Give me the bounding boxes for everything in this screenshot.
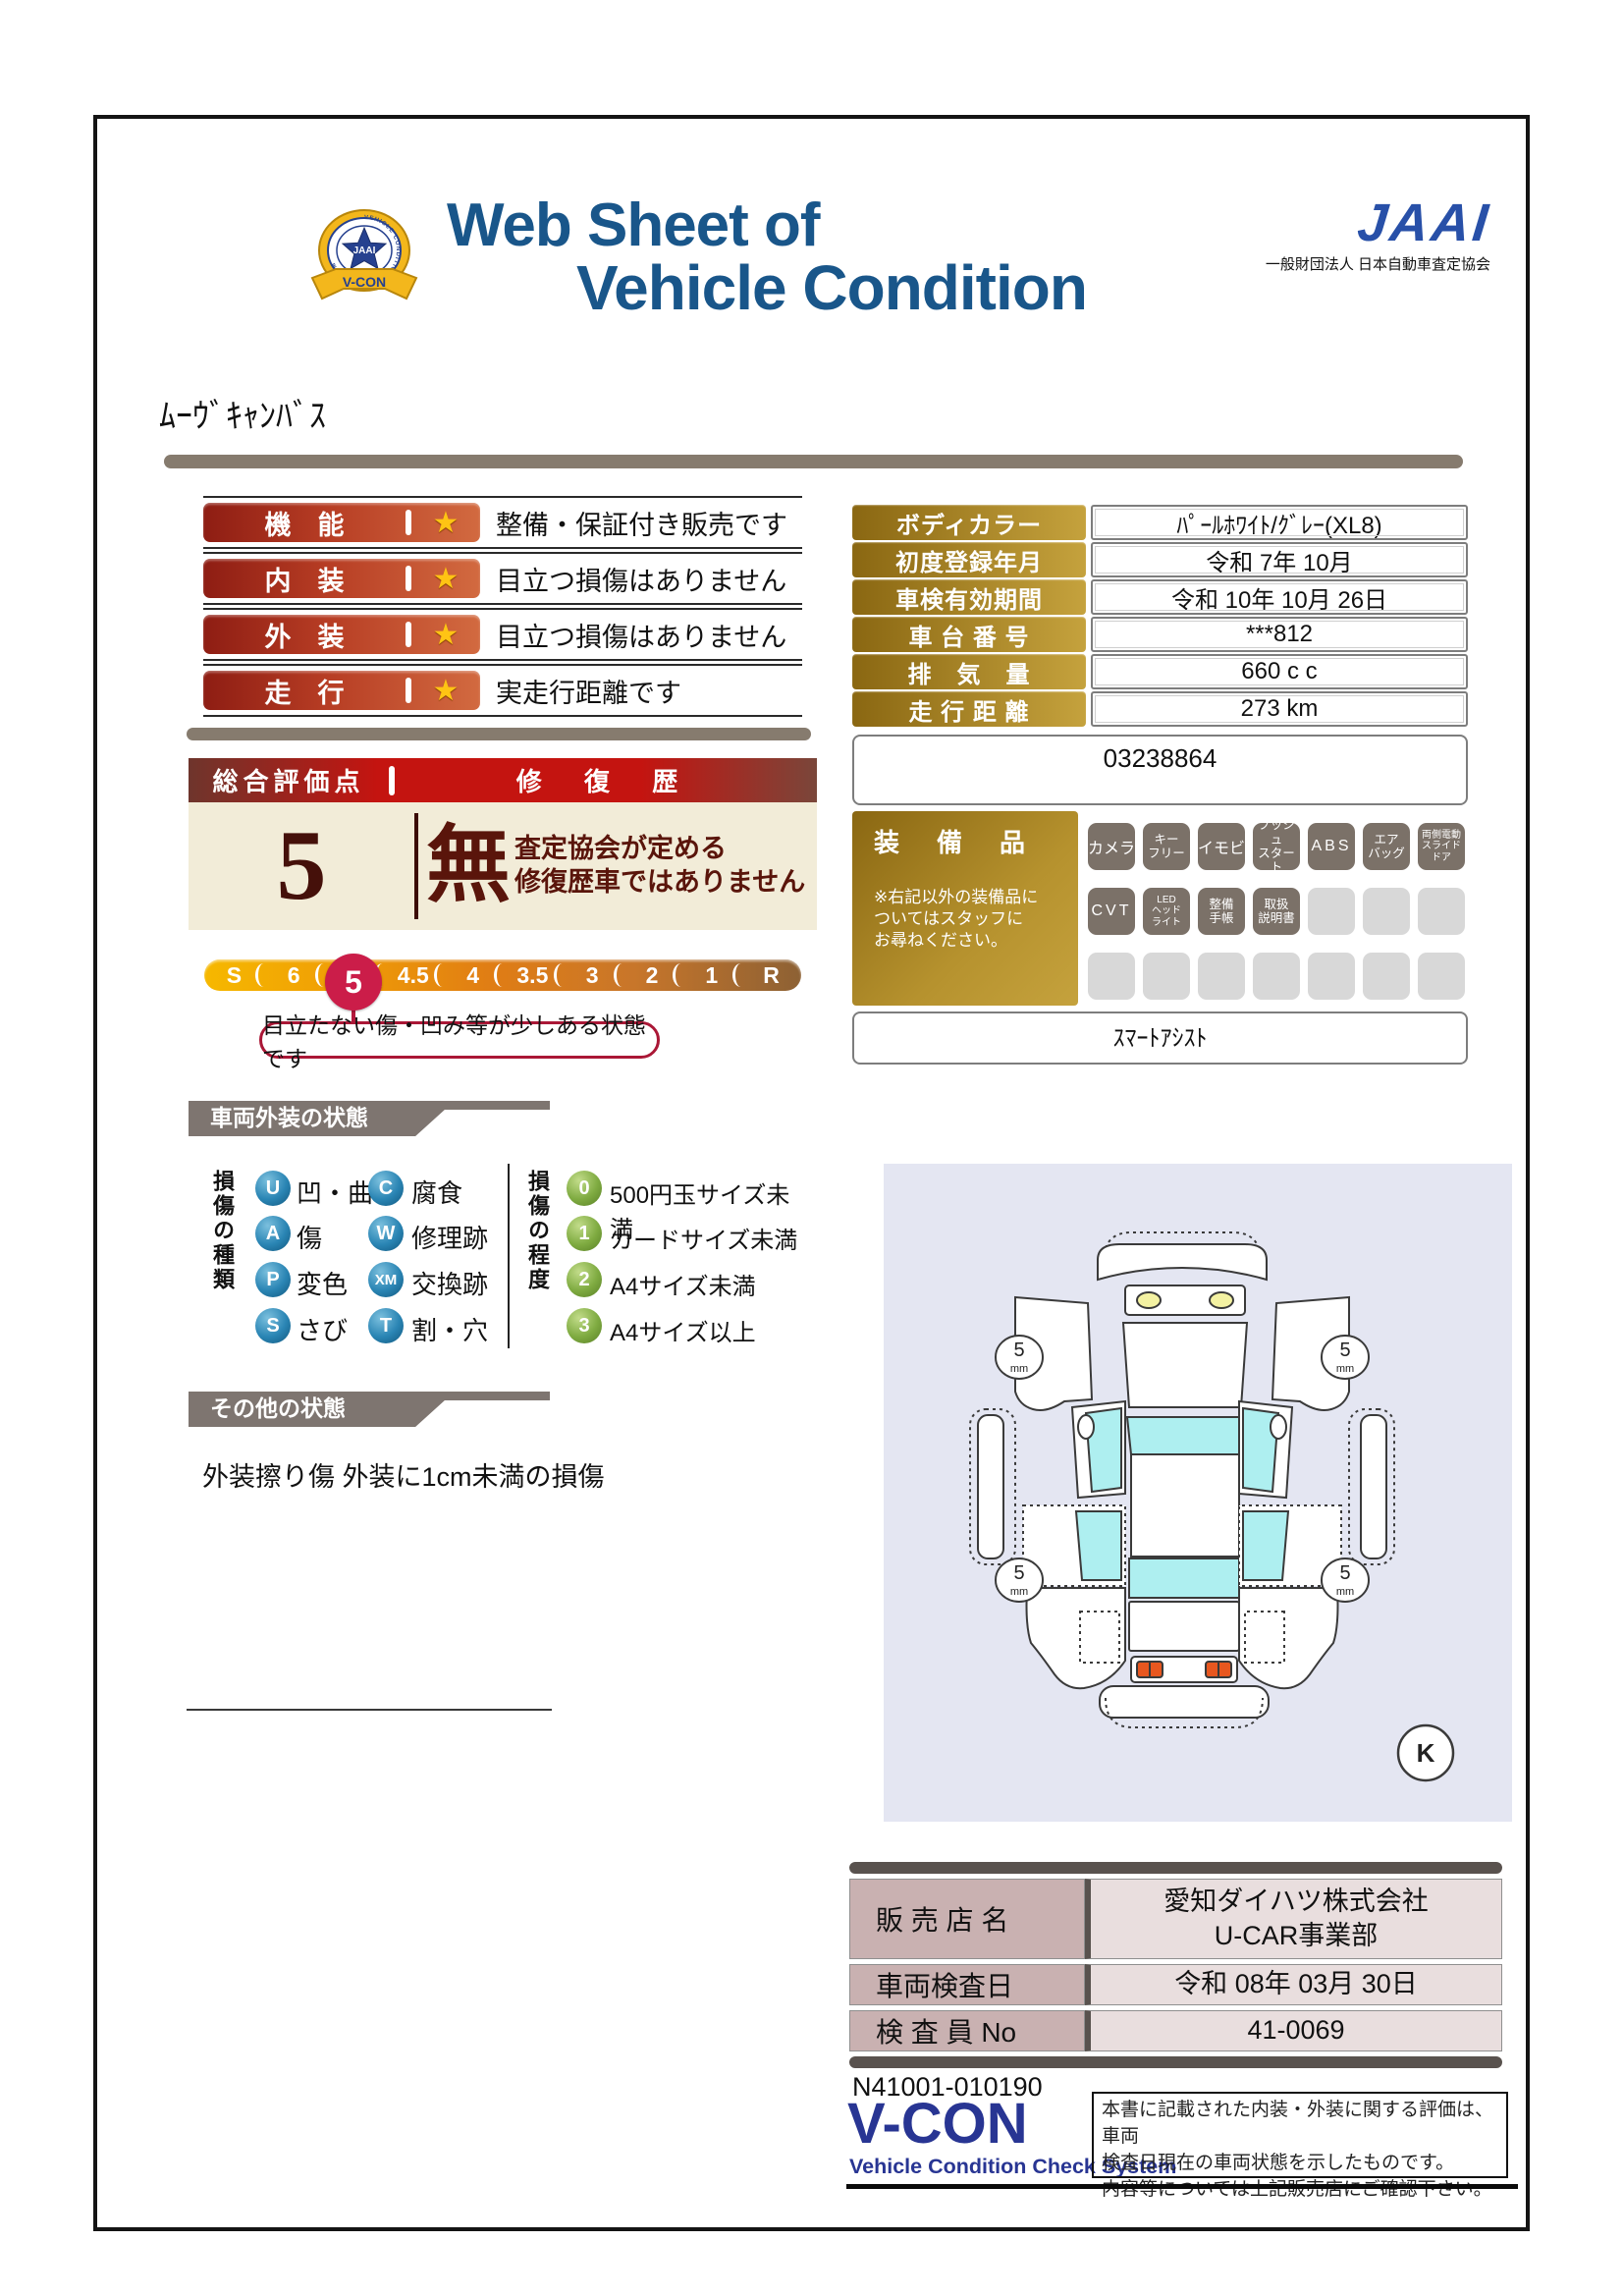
degree-0-icon: 0 <box>567 1171 602 1206</box>
rating-comment: 目立つ損傷はありません <box>496 560 786 598</box>
star-icon: ★ <box>411 618 480 652</box>
overall-body: 5 無 査定協会が定める 修復歴車ではありません <box>189 802 817 930</box>
equipment-badge-empty <box>1308 953 1355 1000</box>
equipment-badge-empty <box>1418 888 1465 935</box>
tire-depth-value: 5 <box>1013 1562 1024 1584</box>
damage-code-a-icon: A <box>255 1216 291 1251</box>
damage-code-t-icon: T <box>368 1308 404 1343</box>
overall-score-box: 総合評価点 修 復 歴 5 無 査定協会が定める 修復歴車ではありません <box>189 758 817 930</box>
info-label: ボディカラー <box>852 505 1086 540</box>
tire-badge-front-left: 5 mm <box>996 1336 1043 1379</box>
overall-body-separator <box>414 813 418 919</box>
rating-row-interior: 内 装 ★ 目立つ損傷はありません <box>203 552 802 605</box>
crest-vcon-text: V-CON <box>343 274 386 290</box>
reference-number-box: 03238864 <box>852 735 1468 805</box>
equipment-badge-empty <box>1363 953 1410 1000</box>
damage-code-p-icon: P <box>255 1262 291 1297</box>
dealer-row-inspection-date: 車両検査日 令和 08年 03月 30日 <box>849 1964 1502 2005</box>
crest-jaai-text: JAAI <box>353 246 376 256</box>
section-title: 車両外装の状態 <box>210 1105 368 1130</box>
sheet-title: Web Sheet of Vehicle Condition <box>447 194 1087 321</box>
vehicle-name: ﾑｰｳﾞｷｬﾝﾊﾞｽ <box>159 389 326 437</box>
damage-type-label: さび <box>297 1311 348 1347</box>
jaai-org-name: 一般財団法人 日本自動車査定協会 <box>1227 253 1490 274</box>
door-mirror <box>1078 1415 1094 1439</box>
equipment-badge-service-record: 整備 手帳 <box>1198 888 1245 935</box>
degree-label: A4サイズ以上 <box>610 1313 756 1347</box>
overall-score-value: 5 <box>189 816 414 916</box>
title-line2: Vehicle Condition <box>576 256 1087 320</box>
info-label: 排 気 量 <box>852 654 1086 689</box>
overall-header: 総合評価点 修 復 歴 <box>189 758 817 802</box>
jaai-logo: JAAI <box>1224 196 1493 249</box>
equipment-badge-immobilizer: イモビ <box>1198 823 1245 870</box>
equipment-badge-empty <box>1253 953 1300 1000</box>
damage-type-label: 凹・曲 <box>297 1174 373 1210</box>
rating-label: 内 装 <box>203 560 406 598</box>
damage-type-label: 割・穴 <box>411 1311 488 1347</box>
rating-comment: 目立つ損傷はありません <box>496 616 786 654</box>
section-title: その他の状態 <box>210 1395 346 1421</box>
smart-assist-box: ｽﾏｰﾄｱｼｽﾄ <box>852 1011 1468 1065</box>
sliding-door-window <box>1076 1511 1121 1580</box>
damage-type-label: 変色 <box>297 1265 348 1301</box>
repair-history: 無 査定協会が定める 修復歴車ではありません <box>426 826 805 906</box>
degree-2-icon: 2 <box>567 1262 602 1297</box>
dealer-value: 令和 08年 03月 30日 <box>1085 1964 1502 2005</box>
rating-comment: 実走行距離です <box>496 672 681 710</box>
rating-label: 外 装 <box>203 616 406 654</box>
tire-badge-front-right: 5 mm <box>1322 1336 1369 1379</box>
degree-3-icon: 3 <box>567 1308 602 1343</box>
tire-badge-rear-left: 5 mm <box>996 1558 1043 1602</box>
info-row-body-color: ボディカラー ﾊﾟｰﾙﾎﾜｲﾄ/ｸﾞﾚｰ(XL8) <box>852 505 1468 540</box>
rating-label: 走 行 <box>203 672 406 710</box>
headlight-right <box>1210 1292 1233 1308</box>
equipment-badge-abs: ABS <box>1308 823 1355 870</box>
windshield <box>1127 1417 1243 1454</box>
damage-type-title: 損傷の種類 <box>206 1170 238 1292</box>
damage-code-s-icon: S <box>255 1308 291 1343</box>
info-row-inspection-valid: 車検有効期間 令和 10年 10月 26日 <box>852 579 1468 615</box>
disclaimer-box: 本書に記載された内装・外装に関する評価は、車両 検査日現在の車両状態を示したもの… <box>1092 2092 1508 2178</box>
dealer-value: 41-0069 <box>1085 2010 1502 2051</box>
damage-type-label: 修理跡 <box>411 1219 488 1255</box>
grade-scale: S 6 5 4.5 4 3.5 3 2 1 R <box>204 959 801 991</box>
info-row-chassis-number: 車 台 番 号 ***812 <box>852 617 1468 652</box>
degree-label: A4サイズ未満 <box>610 1267 756 1301</box>
car-diagram-panel: 5 mm 5 mm 5 mm 5 mm <box>884 1164 1512 1822</box>
jaai-org: JAAI 一般財団法人 日本自動車査定協会 <box>1227 196 1490 274</box>
front-bumper <box>1098 1244 1267 1280</box>
left-side-panels <box>970 1297 1125 1688</box>
info-value: 273 km <box>1091 691 1468 727</box>
equipment-badge-led-headlight: LED ヘッド ライト <box>1143 888 1190 935</box>
degree-label: カードサイズ未満 <box>610 1221 797 1255</box>
damage-code-w-icon: W <box>368 1216 404 1251</box>
side-strip <box>978 1415 1003 1558</box>
equipment-badge-cvt: CVT <box>1088 888 1135 935</box>
dealer-row-inspector: 検 査 員 No 41-0069 <box>849 2010 1502 2051</box>
equipment-badge-empty <box>1088 953 1135 1000</box>
grade-seg-r: R <box>741 962 801 989</box>
dealer-label: 検 査 員 No <box>849 2010 1085 2051</box>
equipment-badge-empty <box>1363 888 1410 935</box>
tire-depth-value: 5 <box>1339 1562 1350 1584</box>
tire-badge-rear-right: 5 mm <box>1322 1558 1369 1602</box>
grade-callout: 目立たない傷・凹み等が少しある状態です <box>259 1021 660 1059</box>
car-diagram: 5 mm 5 mm 5 mm 5 mm <box>884 1164 1512 1822</box>
damage-degree-title: 損傷の程度 <box>521 1170 553 1292</box>
equipment-title: 装 備 品 <box>874 823 1078 859</box>
info-label: 走 行 距 離 <box>852 691 1086 727</box>
dealer-row-shop: 販 売 店 名 愛知ダイハツ株式会社 U-CAR事業部 <box>849 1879 1502 1959</box>
equipment-badge-owners-manual: 取扱 説明書 <box>1253 888 1300 935</box>
info-value: ﾊﾟｰﾙﾎﾜｲﾄ/ｸﾞﾚｰ(XL8) <box>1091 505 1468 540</box>
dealer-label: 車両検査日 <box>849 1964 1085 2005</box>
rating-row-exterior: 外 装 ★ 目立つ損傷はありません <box>203 608 802 661</box>
tire-depth-unit: mm <box>1336 1363 1354 1375</box>
info-value: ***812 <box>1091 617 1468 652</box>
damage-type-label: 腐食 <box>411 1174 462 1210</box>
equipment-badge-push-start: プッシュ スタート <box>1253 823 1300 870</box>
star-icon: ★ <box>411 674 480 708</box>
info-value: 令和 10年 10月 26日 <box>1091 579 1468 615</box>
other-condition-note: 外装擦り傷 外装に1cm未満の損傷 <box>202 1455 605 1494</box>
tire-depth-unit: mm <box>1010 1363 1028 1375</box>
equipment-badge-camera: カメラ <box>1088 823 1135 870</box>
selected-grade-badge: 5 <box>325 954 382 1011</box>
footer-line <box>846 2184 1518 2189</box>
damage-type-label: 傷 <box>297 1219 322 1255</box>
rear-quarter <box>1027 1588 1126 1688</box>
rating-bar: 走 行 ★ <box>203 671 480 710</box>
rating-comment: 整備・保証付き販売です <box>496 504 787 542</box>
vcon-crest-icon: VEHICLE CONDITION CHECK SYSTEM JAAI V-CO… <box>306 209 422 311</box>
equipment-grid: カメラ キー フリー イモビ プッシュ スタート ABS エア バッグ 両側電動… <box>1088 823 1465 1000</box>
dealer-table-top-bar <box>849 1862 1502 1874</box>
equipment-note: ※右記以外の装備品に ついてはスタッフに お尋ねください。 <box>874 887 1078 952</box>
repair-history-title: 修 復 歴 <box>395 762 817 798</box>
rating-bar: 機 能 ★ <box>203 503 480 542</box>
star-icon: ★ <box>411 562 480 596</box>
k-mark: K <box>1417 1738 1435 1768</box>
equipment-badge-empty <box>1308 888 1355 935</box>
tailgate <box>1129 1602 1239 1651</box>
roof <box>1131 1454 1239 1557</box>
tire-depth-unit: mm <box>1010 1586 1028 1598</box>
info-value: 令和 7年 10月 <box>1091 542 1468 577</box>
rating-row-mileage: 走 行 ★ 実走行距離です <box>203 664 802 717</box>
info-row-first-registration: 初度登録年月 令和 7年 10月 <box>852 542 1468 577</box>
info-row-displacement: 排 気 量 660 c c <box>852 654 1468 689</box>
damage-code-u-icon: U <box>255 1171 291 1206</box>
info-row-mileage: 走 行 距 離 273 km <box>852 691 1468 727</box>
star-icon: ★ <box>411 506 480 540</box>
equipment-badge-power-slide-doors: 両側電動 スライド ドア <box>1418 823 1465 870</box>
equipment-box: 装 備 品 ※右記以外の装備品に ついてはスタッフに お尋ねください。 <box>852 811 1078 1006</box>
dealer-table: 販 売 店 名 愛知ダイハツ株式会社 U-CAR事業部 車両検査日 令和 08年… <box>849 1862 1502 2068</box>
info-label: 初度登録年月 <box>852 542 1086 577</box>
divider-bar-top <box>164 455 1463 468</box>
divider-bar-mid <box>187 728 811 740</box>
equipment-badge-empty <box>1198 953 1245 1000</box>
headlight-left <box>1137 1292 1161 1308</box>
dealer-table-bottom-bar <box>849 2056 1502 2068</box>
damage-type-label: 交換跡 <box>411 1265 488 1301</box>
equipment-badge-airbag: エア バッグ <box>1363 823 1410 870</box>
info-label: 車検有効期間 <box>852 579 1086 615</box>
dealer-label: 販 売 店 名 <box>849 1879 1085 1959</box>
repair-history-note: 査定協会が定める 修復歴車ではありません <box>514 833 805 900</box>
info-label: 車 台 番 号 <box>852 617 1086 652</box>
equipment-badge-empty <box>1143 953 1190 1000</box>
rating-row-function: 機 能 ★ 整備・保証付き販売です <box>203 496 802 549</box>
degree-1-icon: 1 <box>567 1216 602 1251</box>
title-line1: Web Sheet of <box>447 194 1087 256</box>
dealer-value: 愛知ダイハツ株式会社 U-CAR事業部 <box>1085 1879 1502 1959</box>
equipment-badge-empty <box>1418 953 1465 1000</box>
hood <box>1123 1323 1247 1407</box>
rating-bar: 外 装 ★ <box>203 615 480 654</box>
damage-code-c-icon: C <box>368 1171 404 1206</box>
damage-legend: 損傷の種類 U 凹・曲 C 腐食 A 傷 W 修理跡 P 変色 XM 交換跡 S… <box>201 1164 810 1360</box>
tire-depth-unit: mm <box>1336 1586 1354 1598</box>
right-side-panels <box>1239 1297 1394 1688</box>
tire-depth-value: 5 <box>1013 1339 1024 1361</box>
rear-bumper <box>1100 1686 1269 1718</box>
repair-history-mark: 無 <box>426 826 511 906</box>
legend-divider <box>508 1164 510 1348</box>
rating-bar: 内 装 ★ <box>203 559 480 598</box>
vehicle-condition-sheet: VEHICLE CONDITION CHECK SYSTEM JAAI V-CO… <box>0 0 1623 2296</box>
notes-underline <box>187 1709 552 1711</box>
tire-depth-value: 5 <box>1339 1339 1350 1361</box>
overall-score-title: 総合評価点 <box>189 762 389 798</box>
rear-window <box>1129 1558 1239 1598</box>
damage-code-xm-icon: XM <box>368 1262 404 1297</box>
rating-label: 機 能 <box>203 504 406 542</box>
info-value: 660 c c <box>1091 654 1468 689</box>
vcon-logo: V-CON <box>847 2096 1028 2153</box>
equipment-badge-keyfree: キー フリー <box>1143 823 1190 870</box>
